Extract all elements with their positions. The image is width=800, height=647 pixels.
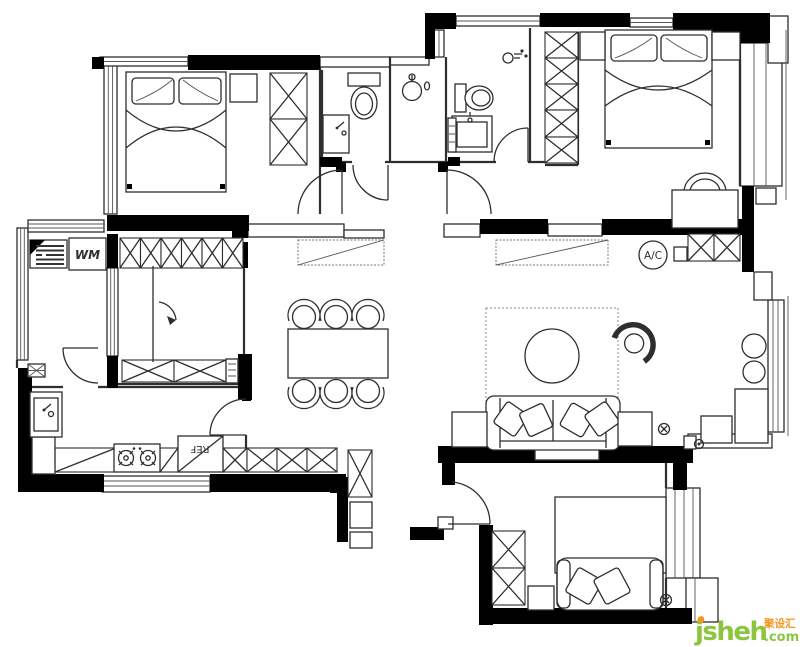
door-utility: [63, 348, 98, 383]
sink-bath2-icon: [452, 112, 492, 152]
wardrobe-bedroom3-icon: [492, 531, 525, 605]
stove-icon: [114, 444, 160, 472]
stool-icon: [742, 334, 766, 358]
bed-bedroom1-icon: [126, 72, 226, 192]
window-top-middle: [456, 16, 540, 26]
sink-bath1-icon: [323, 115, 349, 153]
floor-plan: REF WM: [0, 0, 800, 647]
watermark-badge: 聚设汇: [763, 617, 796, 630]
bed-master-icon: [605, 30, 712, 148]
dining-chairs-bottom: [288, 380, 384, 409]
bed-bedroom3-icon: [557, 558, 663, 610]
desk-master-icon: [672, 173, 738, 228]
sideboard-right-icon: [496, 240, 608, 265]
dining-table-icon: [288, 329, 388, 378]
nightstand-bedroom3: [528, 586, 554, 610]
basin-icon: [403, 74, 430, 101]
coffee-table-icon: [525, 329, 579, 383]
side-table-left: [452, 412, 487, 447]
bedroom3: [528, 497, 666, 610]
shower-room: [403, 74, 430, 101]
towel-rail-icon: [448, 118, 456, 152]
window-study-left: [107, 268, 118, 356]
door-bedroom3: [448, 482, 490, 524]
floor-plan-drawing: REF WM: [0, 0, 800, 647]
window-utility-top: [28, 220, 104, 232]
study-room: [153, 266, 176, 362]
floor-drain-icon: [28, 364, 45, 377]
washing-machine-icon: [30, 240, 67, 268]
closet-hall-icon: [120, 238, 243, 268]
armchair-icon: [613, 317, 662, 363]
watermark-dot-icon: [698, 616, 705, 623]
bedroom1: [126, 72, 257, 192]
slide-arrow-icon: [167, 316, 176, 325]
stool-icon-2: [743, 361, 765, 383]
master-bedroom: [580, 30, 740, 228]
wardrobe-master-icon: [545, 32, 578, 163]
cabinet-study-icon: [122, 359, 238, 383]
wm-cabinet: WM: [69, 238, 106, 270]
toilet-bath2-icon: [455, 84, 493, 112]
dining-chairs-top: [288, 299, 384, 328]
toilet-bath1-icon: [348, 73, 380, 119]
refrigerator-label: REF: [190, 443, 209, 454]
wm-label: WM: [75, 248, 100, 262]
cabinet-ac-icon: [674, 234, 740, 261]
ac-symbol: A/C: [639, 241, 667, 269]
ac-label: A/C: [644, 250, 662, 262]
window-living-right: [768, 296, 788, 436]
bay-window-bedroom3: [666, 488, 718, 622]
bathroom2: [448, 49, 528, 152]
bathroom1: [323, 73, 380, 153]
watermark: jsheh 聚设汇 .com: [694, 616, 799, 647]
living-room: [452, 308, 768, 450]
door-master-suite: [447, 170, 491, 214]
door-kitchen: [210, 399, 246, 435]
sofa-icon: [486, 396, 620, 450]
watermark-brand: jsheh: [694, 617, 767, 647]
nightstand-master-right: [712, 32, 740, 60]
window-top-right: [630, 18, 673, 27]
balcony-master-right: [740, 16, 788, 200]
faucet-bath2-icon: [503, 49, 528, 63]
sideboard-left-icon: [298, 240, 384, 265]
tv-cabinet-icon: [735, 389, 768, 443]
window-kitchen-bottom: [102, 476, 210, 492]
cabinet-small: [701, 416, 732, 443]
side-table-right: [618, 412, 652, 446]
wardrobe-bedroom1-icon: [270, 73, 307, 165]
window-bedroom1-left: [104, 64, 117, 214]
watermark-suffix: .com: [764, 630, 799, 645]
nightstand-master-left: [580, 32, 605, 60]
door-bathroom1: [353, 165, 388, 200]
dining-area: [288, 240, 608, 409]
utility-room: WM: [30, 238, 106, 270]
window-bedroom1-top: [100, 57, 188, 66]
refrigerator-icon: REF: [178, 436, 223, 472]
socket-icon-1: [659, 424, 670, 435]
window-utility-left: [17, 228, 28, 368]
door-bathroom2: [494, 128, 528, 162]
nightstand-bedroom1: [230, 74, 257, 102]
kitchen-sink-icon: [30, 392, 62, 437]
